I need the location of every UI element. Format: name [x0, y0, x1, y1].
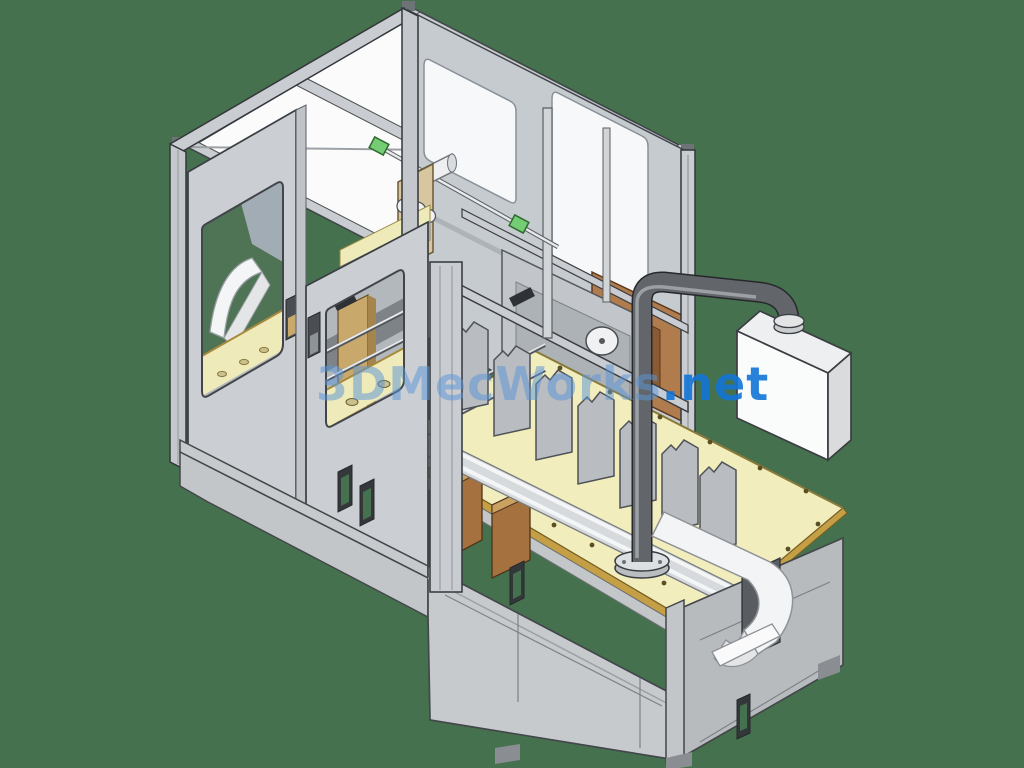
- machine-foot: [495, 744, 520, 764]
- sliding-door-1: [188, 110, 298, 500]
- frame-post: [603, 128, 610, 302]
- machine-render: 3DMecWorks.net: [0, 0, 1024, 768]
- watermark-text: 3DMecWorks.net: [316, 357, 769, 411]
- lower-handle-opening: [341, 474, 349, 506]
- watermark-brand: 3DMecWorks: [316, 357, 662, 411]
- enclosure-front-corner-post: [430, 262, 462, 592]
- frame-post: [543, 108, 552, 338]
- watermark-suffix: .net: [662, 357, 769, 411]
- door1-handle-inner: [288, 314, 296, 337]
- cabinet-handle-opening: [740, 703, 747, 731]
- box-side: [828, 353, 851, 460]
- cad-render-viewport: 3DMecWorks.net: [0, 0, 1024, 768]
- door2-handle-inner: [310, 332, 318, 355]
- cabinet-corner-post: [666, 600, 684, 763]
- door-stile: [296, 105, 306, 505]
- cabinet-handle-opening: [513, 570, 521, 599]
- lower-handle-opening: [363, 488, 371, 520]
